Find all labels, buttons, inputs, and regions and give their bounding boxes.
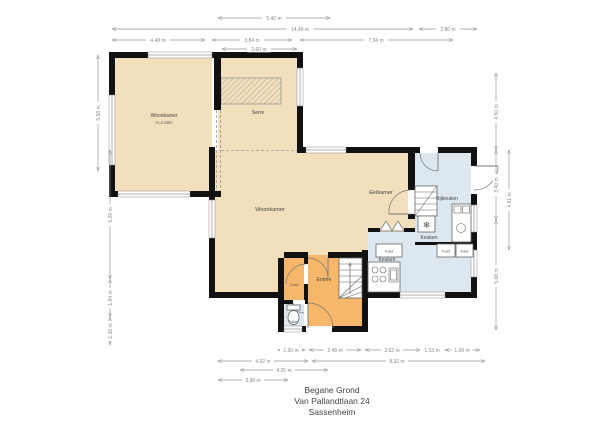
label-kast-hal: Kast [290,282,299,287]
label-kast-3: Kast [460,249,469,254]
dim-label: 1.68 m [454,348,469,354]
dim-label: 4.81 m [507,192,513,207]
floorplan-page: ❄ Woonkamer H=2.58m Serre Eetkamer Woonk… [0,0,600,424]
dim-label: 2.80 m [440,27,455,33]
window [284,326,302,332]
window [118,191,190,197]
boiler-unit: ❄ [418,216,435,232]
dim-label: 1.84 m [108,290,114,305]
label-keuken-boven: Keuken [421,235,438,241]
title-floor: Begane Grond [304,385,360,395]
dim-label: 5.40 m [266,16,281,22]
staircase-small [415,186,437,216]
window [297,68,303,106]
floorplan-drawing: ❄ Woonkamer H=2.58m Serre Eetkamer Woonk… [0,0,600,424]
window [400,292,445,298]
dim-label: 2.48 m [327,348,342,354]
label-toilet: Toilet [288,319,298,324]
label-eetkamer: Eetkamer [369,190,393,196]
label-woonkamer: Woonkamer [255,207,285,213]
dim-label: 3.38 m [245,378,260,384]
window [306,147,346,153]
staircase-main [339,258,362,298]
dim-label: 2.62 m [384,348,399,354]
dim-label: 3.60 m [251,47,266,53]
snowflake-icon: ❄ [423,220,431,230]
window [209,200,215,238]
hatched-area [221,78,281,104]
dim-label: 6.20 m [108,207,114,222]
window [148,52,212,58]
label-woonkamer-voor: Woonkamer [151,113,178,119]
dim-label: 4.25 m [276,368,291,374]
dim-label: 5.68 m [494,268,500,283]
label-kast-1: Kast [385,249,394,254]
label-woonkamer-voor-height: H=2.58m [155,120,173,125]
dim-label: 5.58 m [96,105,102,120]
dim-label: 4.48 m [150,38,165,44]
dim-label: 1.36 m [108,323,114,338]
dimensions-bottom: 1.30 m 2.48 m 2.62 m 1.03 m 1.68 m 4.32 … [218,347,485,384]
dim-label: 4.32 m [255,359,270,365]
dim-label: 4.50 m [494,104,500,119]
window [471,205,477,232]
dimensions-right: 4.50 m 3.40 m 5.68 m 4.81 m [493,73,513,330]
dim-label: 8.32 m [389,359,404,365]
dim-label: 3.40 m [494,177,500,192]
label-serre: Serre [252,110,264,116]
kitchen-counter [368,262,400,292]
label-keuken-onder: Keuken [379,257,396,263]
dim-label: 14.48 m [291,27,309,33]
title-block: Begane Grond Van Pallandtlaan 24 Sassenh… [294,385,370,417]
label-entree: Entree [317,277,332,283]
label-kast-2: Kast [442,249,451,254]
dimensions-top: 5.40 m 14.48 m 2.80 m 4.48 m 3.84 m 7.34… [112,15,477,53]
dim-label: 1.03 m [424,348,439,354]
title-city: Sassenheim [309,407,356,417]
dim-label: 7.34 m [368,38,383,44]
dim-label: 3.84 m [244,38,259,44]
title-address: Van Pallandtlaan 24 [294,396,370,406]
dim-label: 1.30 m [283,348,298,354]
label-bijkeuken: Bijkeuken [436,196,458,202]
bijkeuken-counter [452,204,471,242]
